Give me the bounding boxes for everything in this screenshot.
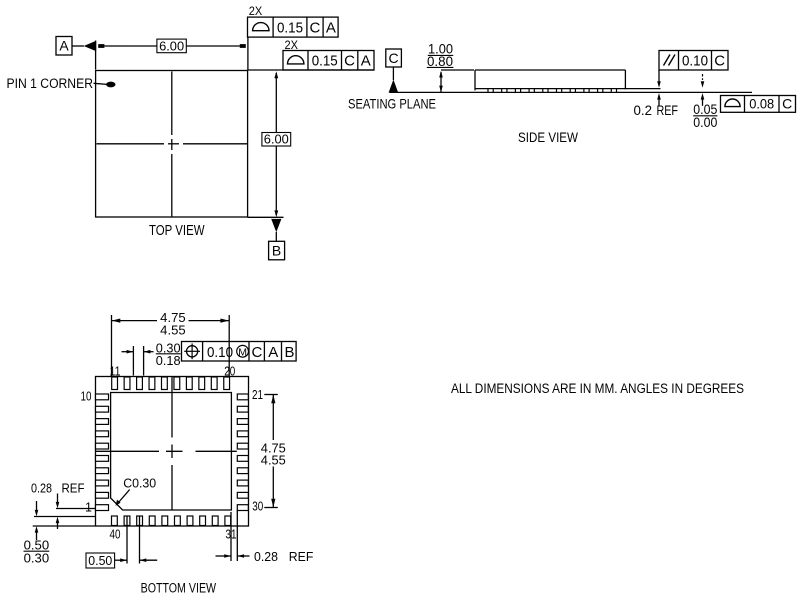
svg-text:6.00: 6.00 bbox=[159, 38, 184, 53]
svg-text:0.80: 0.80 bbox=[427, 54, 453, 69]
svg-text:1: 1 bbox=[85, 501, 92, 515]
svg-text:4.55: 4.55 bbox=[261, 452, 286, 467]
svg-text:C: C bbox=[251, 344, 262, 361]
svg-text:C: C bbox=[389, 50, 399, 66]
svg-text:SEATING PLANE: SEATING PLANE bbox=[348, 96, 436, 112]
svg-text:A: A bbox=[268, 344, 278, 361]
svg-text:30: 30 bbox=[252, 500, 263, 514]
svg-text:21: 21 bbox=[252, 388, 263, 402]
svg-text:C: C bbox=[344, 53, 355, 70]
svg-text:C: C bbox=[309, 20, 320, 37]
svg-text:A: A bbox=[326, 20, 336, 37]
svg-text:6.00: 6.00 bbox=[264, 132, 289, 147]
svg-text:TOP VIEW: TOP VIEW bbox=[149, 223, 205, 239]
svg-text:ALL DIMENSIONS ARE IN MM. ANGL: ALL DIMENSIONS ARE IN MM. ANGLES IN DEGR… bbox=[451, 381, 744, 396]
svg-text:0.15: 0.15 bbox=[277, 20, 303, 37]
svg-text:REF: REF bbox=[657, 102, 679, 118]
svg-text:M: M bbox=[238, 346, 247, 358]
svg-text:0.28: 0.28 bbox=[254, 549, 278, 564]
svg-text:0.30: 0.30 bbox=[24, 551, 50, 566]
svg-text:B: B bbox=[272, 242, 281, 258]
svg-text:0.50: 0.50 bbox=[88, 553, 112, 568]
svg-text:REF: REF bbox=[62, 481, 85, 496]
svg-text:0.00: 0.00 bbox=[693, 114, 717, 130]
svg-text:0.10: 0.10 bbox=[682, 53, 708, 70]
svg-text:C: C bbox=[782, 96, 792, 112]
svg-text:SIDE VIEW: SIDE VIEW bbox=[518, 129, 579, 145]
svg-text:0.15: 0.15 bbox=[312, 53, 338, 70]
svg-text:4.55: 4.55 bbox=[160, 323, 186, 338]
svg-text:REF: REF bbox=[289, 549, 314, 564]
svg-text:0.28: 0.28 bbox=[31, 481, 52, 496]
svg-text:10: 10 bbox=[81, 389, 92, 403]
svg-text:PIN 1 CORNER: PIN 1 CORNER bbox=[7, 76, 94, 91]
svg-text:0.18: 0.18 bbox=[156, 353, 181, 368]
svg-text:40: 40 bbox=[110, 528, 121, 542]
svg-text:B: B bbox=[284, 344, 294, 361]
svg-text:A: A bbox=[59, 38, 69, 54]
svg-text:2X: 2X bbox=[249, 4, 262, 18]
svg-text:C0.30: C0.30 bbox=[123, 475, 156, 490]
svg-text:A: A bbox=[361, 53, 371, 70]
svg-text:BOTTOM VIEW: BOTTOM VIEW bbox=[141, 580, 217, 595]
svg-text:0.2: 0.2 bbox=[634, 102, 653, 118]
svg-text:0.10: 0.10 bbox=[207, 344, 233, 361]
svg-text:C: C bbox=[714, 53, 725, 70]
svg-text:0.08: 0.08 bbox=[749, 96, 774, 112]
